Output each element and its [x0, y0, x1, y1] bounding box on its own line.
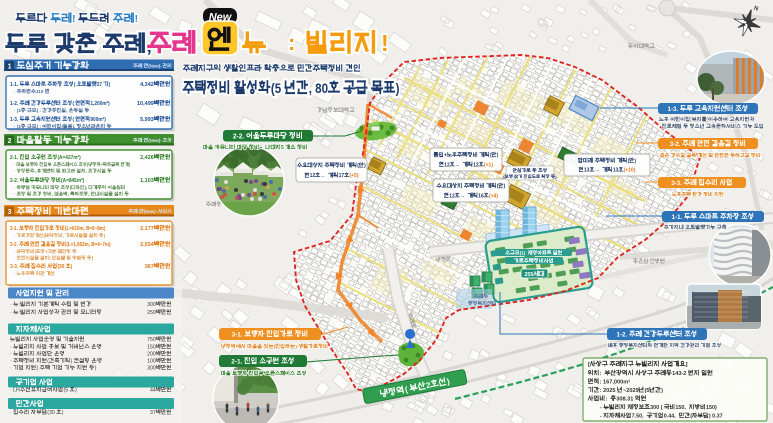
svg-text:(5: (5	[64, 388, 69, 394]
svg-text:44: 44	[150, 388, 156, 394]
svg-text:),: ),	[73, 124, 76, 129]
svg-text:): )	[364, 163, 366, 169]
svg-text:16: 16	[478, 193, 484, 199]
svg-text:3-3.: 3-3.	[671, 180, 682, 187]
svg-text:(New)-: (New)-	[148, 138, 162, 143]
svg-text:): )	[634, 158, 636, 164]
svg-text:!: !	[381, 30, 389, 56]
svg-text:(30: (30	[57, 264, 64, 270]
svg-text:2-2.: 2-2.	[10, 178, 19, 184]
svg-text:2: 2	[8, 138, 12, 145]
svg-text:]: ]	[686, 362, 688, 368]
svg-text:(A=427m²): (A=427m²)	[57, 155, 81, 161]
svg-text:250: 250	[147, 310, 156, 316]
svg-text:·: ·	[10, 310, 12, 316]
svg-text:·: ·	[14, 256, 15, 261]
svg-text:,: ,	[35, 169, 36, 174]
svg-text:(1): (1)	[520, 250, 526, 255]
svg-text:(New)-: (New)-	[144, 209, 158, 214]
svg-text:,: ,	[513, 174, 514, 179]
svg-text:: 2025: : 2025	[600, 388, 616, 394]
svg-text:: 167,000m²: : 167,000m²	[600, 379, 631, 386]
svg-text:3-3.: 3-3.	[10, 264, 19, 270]
svg-text:!: !	[72, 14, 75, 25]
svg-text:(L=1,602m, B=4~7m): (L=1,602m, B=4~7m)	[66, 242, 111, 248]
svg-text:) :: ) :	[37, 108, 42, 113]
svg-text:13: 13	[613, 168, 619, 174]
svg-text:·: ·	[14, 169, 15, 174]
svg-text:): )	[504, 184, 506, 190]
svg-text:·: ·	[14, 185, 15, 190]
svg-text:),: ),	[85, 185, 88, 190]
svg-text:3: 3	[8, 209, 12, 216]
svg-text:(L=610m, B=6~8m): (L=610m, B=6~8m)	[65, 226, 106, 232]
svg-text:3-2.: 3-2.	[10, 242, 18, 248]
svg-text:): )	[396, 80, 400, 96]
svg-text:·: ·	[10, 359, 12, 365]
svg-text:27: 27	[97, 82, 103, 88]
svg-text:3-1.: 3-1.	[10, 226, 18, 232]
svg-text:-: -	[600, 405, 602, 411]
svg-text:~2029: ~2029	[623, 388, 639, 394]
svg-text:150): 150)	[706, 405, 717, 411]
svg-text:750: 750	[147, 337, 156, 343]
svg-text:-: -	[600, 414, 602, 420]
svg-text:·: ·	[14, 192, 15, 197]
svg-text:13: 13	[584, 168, 590, 174]
svg-text:2,177: 2,177	[140, 226, 154, 232]
svg-text:(: (	[490, 153, 492, 159]
svg-text:(: (	[37, 366, 39, 372]
svg-text:· (1: · (1	[14, 124, 21, 129]
svg-text:2,554: 2,554	[140, 242, 155, 248]
svg-text:(+1): (+1)	[484, 162, 493, 168]
svg-text:(New)-: (New)-	[148, 63, 162, 68]
svg-text:1-1.: 1-1.	[10, 82, 19, 88]
svg-text:1-2.: 1-2.	[10, 101, 19, 107]
svg-text:367: 367	[145, 264, 154, 270]
svg-text:(+10): (+10)	[624, 168, 636, 174]
svg-text:2,426: 2,426	[140, 155, 154, 161]
svg-text:2-2.: 2-2.	[233, 133, 244, 140]
svg-text:→: →	[455, 162, 460, 168]
svg-text:·: ·	[14, 249, 15, 254]
svg-text:,: ,	[66, 108, 67, 113]
svg-text:1: 1	[8, 63, 12, 70]
svg-text:·: ·	[14, 271, 15, 276]
svg-text:12: 12	[449, 193, 455, 199]
svg-text:, 80: , 80	[309, 80, 328, 96]
svg-text:2-1.: 2-1.	[10, 155, 19, 161]
svg-text:7.50,: 7.50,	[632, 414, 644, 420]
svg-text:→: →	[460, 193, 465, 199]
svg-text:): )	[62, 410, 64, 416]
svg-text:3-2.: 3-2.	[670, 141, 681, 148]
svg-text:) :: ) :	[37, 124, 42, 129]
svg-text:5,993: 5,993	[140, 117, 154, 123]
svg-text:·: ·	[10, 352, 12, 358]
svg-text:12: 12	[473, 162, 479, 168]
svg-text:(: (	[497, 184, 499, 190]
svg-text:2-1.: 2-1.	[231, 358, 242, 365]
svg-text:10,499: 10,499	[137, 101, 154, 107]
svg-text:17: 17	[339, 173, 345, 179]
svg-text:·: ·	[10, 302, 12, 308]
svg-text::: :	[600, 371, 602, 377]
svg-text:4,342: 4,342	[140, 82, 154, 88]
svg-text:(30: (30	[47, 410, 55, 416]
svg-text:5: 5	[281, 145, 284, 151]
svg-text:(: (	[47, 359, 49, 365]
svg-text:(: (	[628, 158, 630, 164]
svg-text:·: ·	[10, 366, 12, 372]
svg-text:(5: (5	[645, 388, 650, 394]
svg-text:·: ·	[14, 233, 15, 238]
svg-text::: :	[19, 302, 20, 308]
svg-text:300: 300	[147, 302, 156, 308]
svg-text::: :	[606, 397, 608, 403]
svg-text:,: ,	[63, 233, 64, 238]
svg-text:3-1.: 3-1.	[232, 331, 243, 338]
svg-text:): )	[71, 359, 73, 365]
svg-text:1,103: 1,103	[140, 178, 154, 184]
svg-text:+: +	[444, 153, 447, 159]
svg-text:,: ,	[68, 192, 69, 197]
svg-text:): )	[75, 388, 77, 394]
svg-text:·: ·	[14, 162, 15, 167]
svg-text:): )	[95, 366, 97, 372]
svg-text:): )	[661, 388, 663, 394]
svg-text:200: 200	[147, 352, 156, 358]
svg-text:37: 37	[150, 410, 156, 416]
svg-text:[: [	[588, 362, 590, 368]
svg-text:255: 255	[524, 272, 533, 278]
svg-text:,: ,	[86, 169, 87, 174]
svg-text:900m²): 900m²)	[90, 117, 106, 123]
svg-text::: :	[288, 30, 295, 55]
svg-text:): )	[497, 153, 499, 159]
svg-text:(: (	[690, 414, 692, 420]
svg-text:·: ·	[10, 345, 12, 351]
svg-text:!: !	[135, 14, 138, 25]
svg-text:12: 12	[310, 173, 316, 179]
svg-text:+: +	[260, 145, 263, 151]
svg-text:(: (	[357, 163, 359, 169]
svg-text:(+5): (+5)	[350, 173, 359, 179]
svg-text:308.31: 308.31	[616, 397, 633, 403]
svg-text:·: ·	[10, 410, 12, 416]
svg-text::: :	[19, 310, 20, 316]
svg-text:150: 150	[147, 345, 156, 351]
svg-text:,: ,	[88, 192, 89, 197]
svg-text:) 0.37: ) 0.37	[709, 414, 723, 420]
svg-text:1-2.: 1-2.	[617, 331, 628, 338]
svg-text:1-1.: 1-1.	[672, 214, 683, 221]
svg-text:(A=845m²): (A=845m²)	[61, 178, 85, 184]
svg-text:12: 12	[444, 162, 450, 168]
svg-text:0.44,: 0.44,	[664, 414, 676, 420]
svg-text:1,200m²): 1,200m²)	[90, 101, 110, 107]
svg-text:·: ·	[14, 89, 16, 94]
svg-text:(+4): (+4)	[489, 193, 498, 199]
svg-text:100: 100	[147, 359, 156, 365]
svg-text:,: ,	[52, 192, 53, 197]
svg-text:110: 110	[36, 89, 44, 94]
svg-text:→: →	[595, 168, 600, 174]
svg-text:· (1: · (1	[14, 108, 21, 113]
svg-text:300: 300	[147, 366, 156, 372]
svg-text:· LH: · LH	[10, 388, 20, 394]
svg-text:1-3.: 1-3.	[10, 117, 19, 123]
svg-text:(5: (5	[271, 80, 281, 96]
svg-text:1-3.: 1-3.	[668, 106, 679, 113]
svg-text:150,: 150,	[675, 405, 686, 411]
svg-text:→: →	[320, 173, 325, 179]
svg-text:143-2: 143-2	[672, 371, 686, 377]
svg-text:300 (: 300 (	[650, 405, 662, 411]
